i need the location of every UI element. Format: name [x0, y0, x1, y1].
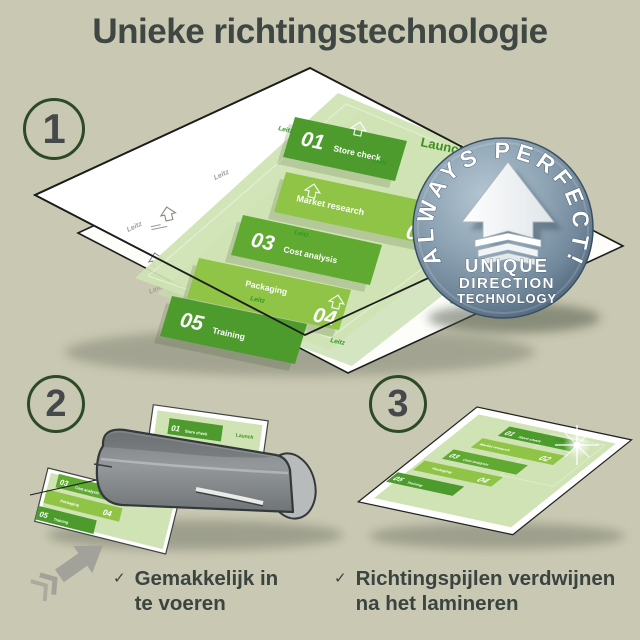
infographic-page: Unieke richtingstechnologie [0, 0, 640, 640]
step-1-badge: 1 [23, 98, 85, 160]
step-2-number: 2 [45, 383, 66, 426]
caption-line: na het lamineren [356, 591, 616, 616]
checkmark-icon: ✓ [113, 566, 126, 616]
step-2-badge: 2 [27, 375, 85, 433]
checkmark-icon: ✓ [334, 566, 347, 616]
step-3-badge: 3 [369, 375, 427, 433]
caption-line: Gemakkelijk in [135, 566, 279, 591]
step-3-number: 3 [387, 383, 408, 426]
badge-line-1: UNIQUE [465, 255, 549, 276]
badge-line-3: TECHNOLOGY [457, 291, 557, 306]
step-1-number: 1 [42, 105, 65, 153]
badge-line-2: DIRECTION [459, 275, 555, 292]
caption-step-3: ✓ Richtingspijlen verdwijnen na het lami… [334, 566, 615, 616]
caption-step-2-text: Gemakkelijk in te voeren [135, 566, 279, 616]
illustration-canvas: Leitz Leitz Leitz [0, 0, 640, 640]
caption-line: Richtingspijlen verdwijnen [356, 566, 616, 591]
mini-band-number: 01 [171, 424, 182, 434]
caption-step-2: ✓ Gemakkelijk in te voeren [113, 566, 278, 616]
caption-line: te voeren [135, 591, 279, 616]
caption-step-3-text: Richtingspijlen verdwijnen na het lamine… [356, 566, 616, 616]
band-01-number: 01 [299, 127, 327, 154]
